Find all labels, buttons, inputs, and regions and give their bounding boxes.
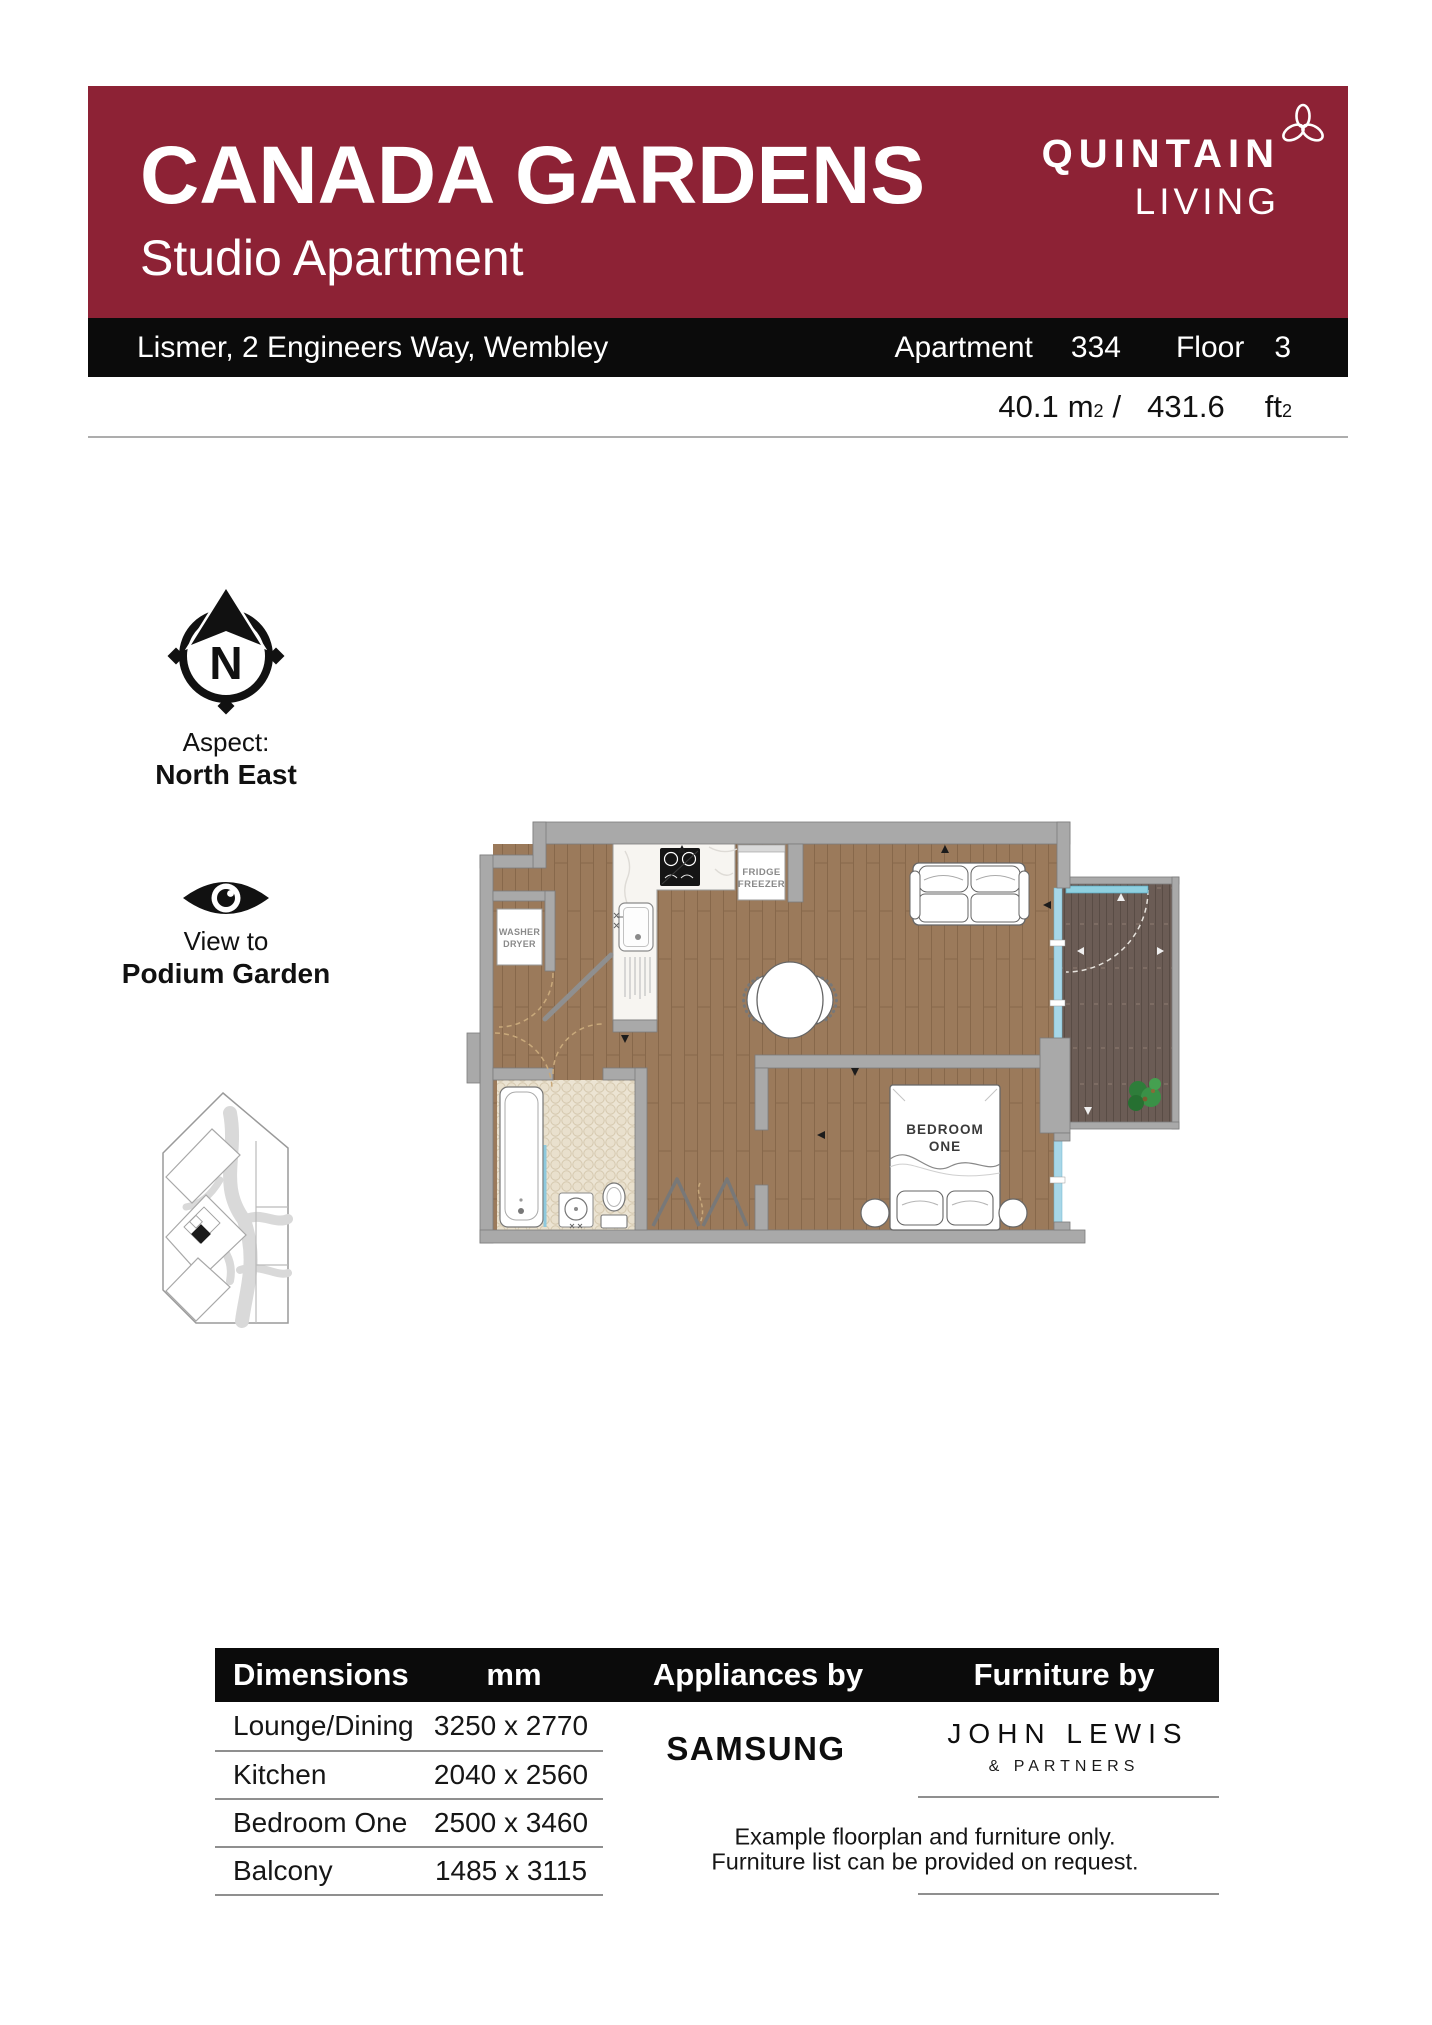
aspect-block: Aspect: North East (96, 726, 356, 792)
table-header-bar: Dimensions mm Appliances by Furniture by (215, 1648, 1219, 1702)
floorplan-drawing: FRIDGE FREEZER (385, 785, 1195, 1263)
john-lewis-logo-line1: JOHN LEWIS (947, 1718, 1188, 1750)
bedroom-label-line2: ONE (929, 1139, 961, 1154)
apartment-info: Apartment 334 Floor 3 (894, 331, 1291, 365)
washer-label-line1: WASHER (499, 927, 541, 937)
sofa (910, 863, 1029, 925)
area-metric-unit: m (1068, 389, 1094, 425)
row-divider (215, 1894, 603, 1896)
table-row: Kitchen 2040 x 2560 (215, 1751, 603, 1799)
table-row: Balcony 1485 x 3115 (215, 1847, 603, 1895)
floor-label: Floor (1176, 331, 1244, 365)
header-furniture-by: Furniture by (974, 1648, 1155, 1702)
address-text: Lismer, 2 Engineers Way, Wembley (137, 331, 608, 365)
divider-rule (88, 436, 1348, 438)
row-value: 2040 x 2560 (434, 1751, 588, 1799)
view-block: View to Podium Garden (96, 925, 356, 991)
bedroom-label-line1: BEDROOM (906, 1122, 984, 1137)
header-appliances-by: Appliances by (653, 1648, 863, 1702)
row-label: Bedroom One (233, 1799, 407, 1847)
apartment-number: 334 (1071, 331, 1121, 365)
brand-name: QUINTAIN (1042, 134, 1280, 174)
furniture-divider-top (918, 1796, 1219, 1798)
brand-logo: QUINTAIN LIVING (1042, 134, 1280, 220)
john-lewis-logo-line2: & PARTNERS (989, 1758, 1140, 1776)
bedside-table-left (861, 1199, 889, 1227)
site-plan-minimap (150, 1085, 310, 1330)
row-value: 1485 x 3115 (435, 1847, 587, 1895)
area-imperial-unit: ft (1265, 389, 1282, 425)
fridge-freezer: FRIDGE FREEZER (738, 845, 785, 900)
fridge-label-line1: FRIDGE (742, 867, 780, 878)
bed-pillow-left (897, 1191, 943, 1225)
row-label: Balcony (233, 1847, 333, 1895)
apartment-label: Apartment (894, 331, 1032, 365)
bathtub (500, 1087, 543, 1227)
row-label: Kitchen (233, 1751, 326, 1799)
table-row: Bedroom One 2500 x 3460 (215, 1799, 603, 1847)
disclaimer-line2: Furniture list can be provided on reques… (711, 1849, 1138, 1876)
aspect-label: Aspect: (96, 726, 356, 758)
compass-icon: N (126, 583, 326, 723)
samsung-logo: SAMSUNG (666, 1730, 845, 1768)
bed-pillow-right (947, 1191, 993, 1225)
header-mm: mm (486, 1648, 541, 1702)
floor-number: 3 (1274, 331, 1291, 365)
view-value: Podium Garden (96, 957, 356, 991)
washer-dryer: WASHER DRYER (497, 909, 542, 965)
brand-name-line2: LIVING (1042, 183, 1280, 220)
aspect-value: North East (96, 758, 356, 792)
header-dimensions: Dimensions (233, 1648, 409, 1702)
bed: BEDROOM ONE (890, 1085, 1000, 1230)
row-value: 2500 x 3460 (434, 1799, 588, 1847)
floor-area: 40.1 m2 / 431.6 ft2 (998, 389, 1292, 425)
header-banner: CANADA GARDENS Studio Apartment QUINTAIN… (88, 86, 1348, 318)
fridge-label-line2: FREEZER (738, 879, 785, 890)
area-slash: / (1113, 389, 1122, 425)
address-bar: Lismer, 2 Engineers Way, Wembley Apartme… (88, 318, 1348, 377)
floorplan-brochure-page: CANADA GARDENS Studio Apartment QUINTAIN… (0, 0, 1432, 2025)
trillium-flower-icon (1281, 101, 1325, 145)
compass-north-letter: N (209, 637, 242, 689)
row-label: Lounge/Dining (233, 1702, 414, 1750)
balcony-door-leaf (1066, 886, 1148, 893)
washer-label-line2: DRYER (503, 939, 536, 949)
kitchen-sink (614, 903, 653, 951)
table-row: Lounge/Dining 3250 x 2770 (215, 1702, 603, 1750)
bedside-table-right (999, 1199, 1027, 1227)
hob (660, 848, 700, 886)
furniture-divider-bottom (918, 1893, 1219, 1895)
view-label: View to (96, 925, 356, 957)
basin (559, 1193, 593, 1228)
page-title: CANADA GARDENS (140, 135, 925, 217)
balcony (1062, 877, 1179, 1129)
area-imperial-value: 431.6 (1147, 389, 1225, 425)
page-subtitle: Studio Apartment (140, 233, 524, 283)
disclaimer-line1: Example floorplan and furniture only. (734, 1824, 1115, 1851)
row-value: 3250 x 2770 (434, 1702, 588, 1750)
eye-icon (126, 872, 326, 924)
toilet (601, 1183, 627, 1228)
area-metric-value: 40.1 (998, 389, 1058, 425)
